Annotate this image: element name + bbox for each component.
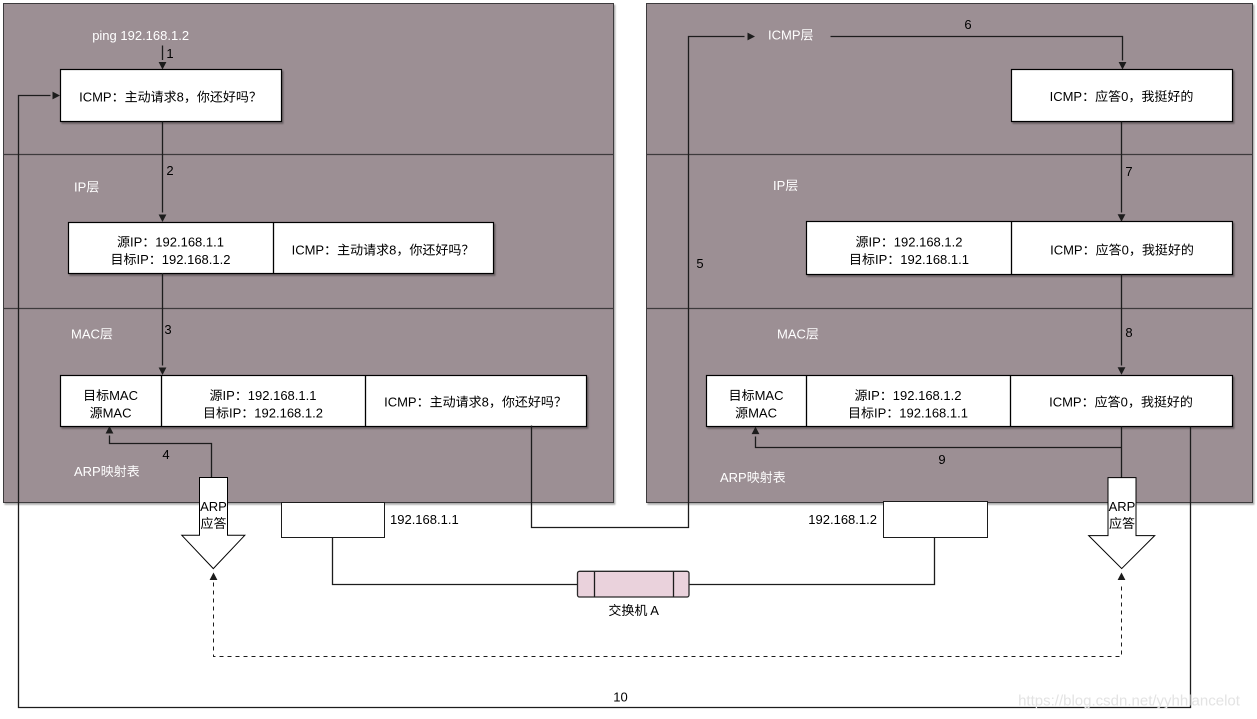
svg-text:192.168.1.1: 192.168.1.1 xyxy=(899,406,968,421)
svg-text:ICMP: ICMP xyxy=(1049,395,1082,410)
svg-text:ICMP: ICMP xyxy=(292,243,325,258)
svg-text:ICMP: ICMP xyxy=(1050,89,1083,104)
svg-text:6: 6 xyxy=(964,17,971,32)
svg-text:IP: IP xyxy=(874,406,886,421)
svg-text:8: 8 xyxy=(482,395,489,410)
svg-text:0: 0 xyxy=(1121,395,1128,410)
svg-text:ARP: ARP xyxy=(720,470,747,485)
svg-text:10: 10 xyxy=(613,690,627,705)
svg-text:IP: IP xyxy=(229,406,241,421)
svg-text:1: 1 xyxy=(166,46,173,61)
svg-text:ICMP: ICMP xyxy=(384,395,417,410)
svg-text:ARP: ARP xyxy=(1109,499,1136,514)
svg-text:192.168.1.2: 192.168.1.2 xyxy=(808,512,877,527)
svg-text:IP: IP xyxy=(869,235,881,250)
svg-text:8: 8 xyxy=(177,90,184,105)
svg-text:MAC: MAC xyxy=(777,327,806,342)
svg-text:IP: IP xyxy=(875,252,887,267)
svg-text:192.168.1.2: 192.168.1.2 xyxy=(254,406,323,421)
svg-text:ARP: ARP xyxy=(200,499,227,514)
svg-text:ICMP: ICMP xyxy=(79,90,112,105)
svg-text:0: 0 xyxy=(1121,89,1128,104)
svg-text:IP: IP xyxy=(137,252,149,267)
svg-text:https://blog.csdn.net/yyhhlanc: https://blog.csdn.net/yyhhlancelot xyxy=(1018,693,1241,710)
svg-text:192.168.1.2: 192.168.1.2 xyxy=(162,252,231,267)
svg-text:ping 192.168.1.2: ping 192.168.1.2 xyxy=(92,28,189,43)
svg-text:192.168.1.1: 192.168.1.1 xyxy=(390,512,459,527)
svg-text:ICMP: ICMP xyxy=(1050,243,1083,258)
svg-text:192.168.1.1: 192.168.1.1 xyxy=(155,235,224,250)
svg-text:IP: IP xyxy=(773,178,785,193)
svg-text:192.168.1.1: 192.168.1.1 xyxy=(248,388,317,403)
svg-text:MAC: MAC xyxy=(755,388,784,403)
svg-text:192.168.1.2: 192.168.1.2 xyxy=(893,388,962,403)
svg-text:ARP: ARP xyxy=(74,464,101,479)
svg-text:7: 7 xyxy=(1125,164,1132,179)
svg-text:192.168.1.1: 192.168.1.1 xyxy=(900,252,969,267)
svg-text:A: A xyxy=(647,603,659,618)
svg-text:8: 8 xyxy=(389,243,396,258)
svg-text:IP: IP xyxy=(130,235,142,250)
svg-text:IP: IP xyxy=(868,388,880,403)
svg-text:5: 5 xyxy=(696,256,703,271)
svg-text:9: 9 xyxy=(938,452,945,467)
svg-text:MAC: MAC xyxy=(103,406,132,421)
svg-text:MAC: MAC xyxy=(748,406,777,421)
svg-text:2: 2 xyxy=(166,163,173,178)
svg-text:IP: IP xyxy=(223,388,235,403)
svg-text:MAC: MAC xyxy=(109,388,138,403)
svg-text:3: 3 xyxy=(164,322,171,337)
svg-text:8: 8 xyxy=(1125,325,1132,340)
svg-text:IP: IP xyxy=(74,180,86,195)
svg-text:MAC: MAC xyxy=(71,327,100,342)
svg-text:ICMP: ICMP xyxy=(768,28,801,43)
svg-text:192.168.1.2: 192.168.1.2 xyxy=(894,235,963,250)
svg-text:4: 4 xyxy=(162,447,169,462)
svg-text:0: 0 xyxy=(1122,243,1129,258)
